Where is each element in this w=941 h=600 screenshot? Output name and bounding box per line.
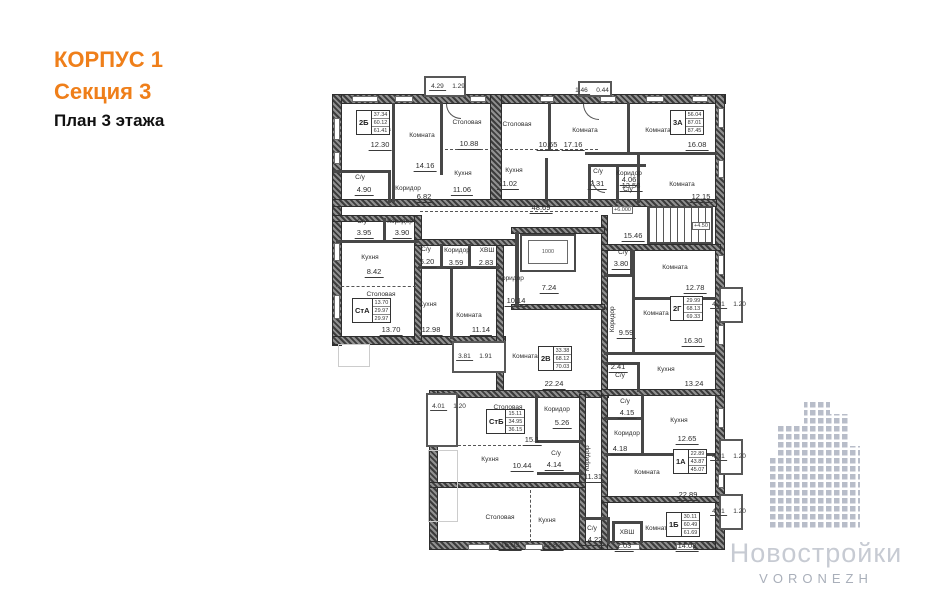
balcony-reduced-area: 1.29	[450, 83, 467, 90]
ghost-outline	[338, 344, 370, 367]
window-segment	[334, 243, 340, 261]
window-segment	[692, 96, 708, 102]
room-label: 14.16	[414, 162, 437, 172]
living-area: 33.38	[554, 347, 572, 355]
room-label: С/у	[615, 373, 625, 380]
total-area-with-balcony: 29.97	[373, 315, 391, 322]
room-label: 4.15	[618, 409, 637, 419]
partition-wall	[627, 103, 630, 153]
apartment-code: 2Б	[357, 111, 372, 134]
window-segment	[646, 96, 664, 102]
apartment-code: 2Г	[671, 297, 684, 320]
door-arc	[446, 104, 461, 119]
partition-wall	[641, 395, 644, 455]
room-label: Коридор	[444, 248, 470, 255]
room-label: 5.26	[553, 419, 572, 429]
watermark-brand: Новостройки	[701, 538, 931, 569]
room-label: 12.15	[690, 193, 713, 203]
room-label: 9.59	[617, 329, 636, 339]
apartment-code: СтБ	[487, 410, 506, 433]
title-block: КОРПУС 1 Секция 3 План 3 этажа	[54, 44, 164, 133]
room-label: Кухня	[419, 302, 436, 309]
room-label: 4.14	[545, 461, 564, 471]
window-segment	[334, 118, 340, 140]
window-segment	[718, 160, 724, 178]
apartment-stamp: 1Б 30.11 60.49 61.69	[666, 512, 700, 537]
living-area: 29.99	[684, 297, 702, 305]
room-label: 7.24	[540, 284, 559, 294]
room-label: 4.90	[355, 186, 374, 196]
room-label: 3.90	[393, 229, 412, 239]
room-label: 15.46	[622, 232, 645, 242]
room-label: 10.14	[505, 297, 528, 307]
room-label: 10.65	[537, 141, 560, 151]
balcony-label: 1.46 0.44	[573, 79, 611, 97]
apartment-areas: 33.38 68.12 70.03	[554, 347, 572, 370]
balcony-area: 4.01	[430, 403, 447, 411]
window-segment	[352, 96, 378, 102]
total-area-with-balcony: 36.15	[506, 426, 524, 433]
apartment-areas: 56.04 87.01 87.45	[686, 111, 704, 134]
floorplan-page: { "title": {"line1": "КОРПУС 1", "line2"…	[0, 0, 941, 600]
window-segment	[334, 152, 340, 164]
partition-wall	[612, 521, 615, 543]
partition-wall	[632, 300, 635, 352]
total-area: 29.97	[373, 307, 391, 315]
room-label: ХВШ	[480, 248, 495, 255]
room-label: 13.24	[683, 380, 706, 390]
partition-wall	[637, 362, 640, 392]
wall-segment	[602, 390, 720, 395]
room-label: Комната	[662, 265, 687, 272]
window-segment	[718, 108, 724, 128]
room-label: 2.83	[477, 259, 496, 269]
partition-wall	[588, 164, 616, 167]
living-area: 13.70	[373, 299, 391, 307]
window-segment	[718, 325, 724, 345]
room-label: Комната	[512, 354, 537, 361]
partition-wall	[640, 521, 643, 543]
partition-wall	[604, 274, 632, 277]
room-label: Кухня	[505, 168, 522, 175]
room-label: Кухня	[538, 518, 555, 525]
room-label: 22.89	[677, 491, 700, 501]
room-label: 16.03	[499, 541, 522, 551]
room-label: 12.30	[369, 141, 392, 151]
room-label: 22.24	[543, 380, 566, 390]
room-label: 15.1	[523, 436, 542, 446]
watermark-city: VORONEZH	[701, 571, 931, 586]
room-label: Кухня	[657, 367, 674, 374]
balcony-label: 3.81 1.91	[456, 345, 494, 363]
dashed-line	[530, 490, 531, 542]
building-title: КОРПУС 1	[54, 44, 164, 76]
room-label: 10.44	[511, 462, 534, 472]
room-label: 3.59	[447, 259, 466, 269]
apartment-areas: 15.11 34.95 36.15	[506, 410, 524, 433]
partition-wall	[336, 240, 418, 243]
room-label: Кухня	[670, 418, 687, 425]
balcony-area: 4.29	[429, 83, 446, 91]
total-area-with-balcony: 61.69	[682, 529, 700, 536]
room-label: Комната	[645, 128, 670, 135]
balcony-reduced-area: 0.44	[594, 87, 611, 94]
balcony-reduced-area: 1.20	[451, 403, 468, 410]
watermark: Новостройки VORONEZH	[701, 402, 931, 586]
apartment-stamp: 3А 56.04 87.01 87.45	[670, 110, 704, 135]
room-label: Столовая	[452, 120, 481, 127]
room-label: 17.16	[562, 141, 585, 151]
room-label: Комната	[669, 182, 694, 189]
balcony-reduced-area: 1.91	[477, 353, 494, 360]
room-label: 1000	[542, 250, 554, 256]
apartment-areas: 30.11 60.49 61.69	[682, 513, 700, 536]
partition-wall	[388, 170, 391, 203]
apartment-areas: 13.70 29.97 29.97	[373, 299, 391, 322]
partition-wall	[440, 244, 443, 268]
room-label: 2.03	[615, 542, 634, 552]
room-label: С/у	[357, 219, 367, 226]
balcony-area: 3.81	[456, 353, 473, 361]
apartment-stamp: 2Г 29.99 68.13 69.33	[670, 296, 703, 321]
room-label: С/у	[551, 451, 561, 458]
partition-wall	[616, 164, 646, 167]
room-label: 11.06	[451, 186, 473, 196]
room-label: Коридор	[610, 306, 617, 332]
window-segment	[468, 544, 490, 550]
partition-wall	[585, 152, 717, 155]
room-label: 12.78	[684, 284, 707, 294]
room-label: Коридор	[544, 407, 570, 414]
partition-wall	[607, 517, 610, 544]
room-label: 10.88	[458, 140, 481, 150]
total-area: 60.49	[682, 521, 700, 529]
floor-title: План 3 этажа	[54, 108, 164, 134]
living-area: 15.11	[506, 410, 524, 418]
wall-segment	[415, 240, 515, 245]
living-area: 37.34	[372, 111, 390, 119]
partition-wall	[392, 103, 395, 175]
apartment-code: 2В	[539, 347, 554, 370]
wall-segment	[512, 228, 604, 233]
room-label: С/у	[623, 187, 633, 194]
room-label: 11.14	[470, 326, 492, 336]
balcony-area: 1.46	[573, 87, 590, 95]
balcony-reduced-area: 1.20	[731, 301, 748, 308]
room-label: Кухня	[481, 457, 498, 464]
room-label: Кухня	[454, 171, 471, 178]
window-segment	[395, 96, 413, 102]
door-arc	[583, 104, 599, 120]
room-label: 11.02	[497, 180, 519, 190]
total-area: 34.95	[506, 418, 524, 426]
room-label: Комната	[634, 470, 659, 477]
elevation-mark: +6.000	[612, 206, 633, 214]
room-label: 5.20	[418, 258, 437, 268]
room-label: Комната	[409, 133, 434, 140]
partition-wall	[582, 517, 610, 520]
room-label: 13.70	[380, 326, 403, 336]
room-label: С/у	[618, 250, 628, 257]
apartment-code: 1Б	[667, 513, 682, 536]
balcony-label: 4.29 1.29	[429, 75, 467, 93]
apartment-code: 1А	[674, 450, 689, 473]
partition-wall	[604, 352, 716, 355]
dashed-line	[336, 286, 416, 287]
room-label: 12.65	[676, 435, 699, 445]
living-area: 56.04	[686, 111, 704, 119]
room-label: Комната	[572, 128, 597, 135]
total-area: 60.12	[372, 119, 390, 127]
partition-wall	[545, 158, 548, 203]
elevation-mark: +4.50	[692, 222, 710, 230]
apartment-code: 3А	[671, 111, 686, 134]
partition-wall	[612, 521, 642, 524]
total-area-with-balcony: 69.33	[684, 313, 702, 320]
room-label: Коридор	[614, 431, 640, 438]
room-label: ХВШ	[620, 530, 635, 537]
total-area: 68.12	[554, 355, 572, 363]
apartment-stamp: СтА 13.70 29.97 29.97	[352, 298, 391, 323]
building-logo-icon	[770, 402, 862, 530]
room-label: 16.08	[686, 141, 709, 151]
room-label: 2.31	[588, 180, 607, 190]
room-label: С/у	[620, 399, 630, 406]
living-area: 30.11	[682, 513, 700, 521]
apartment-stamp: 2Б 37.34 60.12 61.41	[356, 110, 390, 135]
room-label: 16.30	[682, 337, 705, 347]
room-label: 3.95	[355, 229, 374, 239]
section-title: Секция 3	[54, 76, 164, 108]
window-segment	[540, 96, 554, 102]
ghost-outline	[428, 450, 458, 522]
balcony-area: 4.01	[710, 301, 727, 309]
window-segment	[718, 255, 724, 275]
room-label: 4.06	[620, 176, 639, 186]
room-label: 8.42	[365, 268, 384, 278]
room-label: Коридор	[387, 219, 413, 226]
balcony-label: 4.01 1.20	[430, 395, 468, 413]
room-label: 48.69	[530, 204, 553, 214]
room-label: Коридор	[498, 276, 524, 283]
room-label: С/у	[593, 169, 603, 176]
partition-wall	[333, 170, 391, 173]
apartment-areas: 29.99 68.13 69.33	[684, 297, 702, 320]
partition-wall	[383, 218, 386, 240]
room-label: 12.82	[541, 541, 564, 551]
partition-wall	[632, 250, 635, 300]
room-label: 4.22	[586, 536, 605, 546]
dashed-line	[420, 211, 598, 212]
total-area: 87.01	[686, 119, 704, 127]
room-label: Столовая	[502, 122, 531, 129]
room-label: Коридор	[585, 445, 592, 471]
apartment-code: СтА	[353, 299, 373, 322]
room-label: Столовая	[485, 515, 514, 522]
partition-wall	[440, 103, 443, 175]
room-label: С/у	[587, 526, 597, 533]
wall-segment	[415, 216, 421, 341]
total-area-with-balcony: 70.03	[554, 363, 572, 370]
room-label: 11.31	[582, 473, 604, 483]
partition-wall	[450, 269, 453, 339]
room-label: Комната	[456, 313, 481, 320]
room-label: Кухня	[361, 255, 378, 262]
partition-wall	[535, 440, 583, 443]
total-area: 68.13	[684, 305, 702, 313]
apartment-areas: 37.34 60.12 61.41	[372, 111, 390, 134]
room-label: 12.98	[420, 326, 443, 336]
room-label: С/у	[355, 175, 365, 182]
room-label: 4.18	[611, 445, 630, 455]
window-segment	[334, 295, 340, 319]
room-label: С/у	[421, 247, 431, 254]
total-area-with-balcony: 87.45	[686, 127, 704, 134]
apartment-stamp: СтБ 15.11 34.95 36.15	[486, 409, 525, 434]
window-segment	[470, 96, 486, 102]
room-label: Комната	[643, 311, 668, 318]
room-label: 6.82	[415, 193, 434, 203]
apartment-stamp: 2В 33.38 68.12 70.03	[538, 346, 572, 371]
room-label: 14.08	[676, 542, 699, 552]
balcony-label: 4.01 1.20	[710, 293, 748, 311]
partition-wall	[537, 472, 583, 475]
wall-segment	[333, 95, 725, 103]
total-area-with-balcony: 61.41	[372, 127, 390, 134]
room-label: 3.80	[612, 260, 631, 270]
